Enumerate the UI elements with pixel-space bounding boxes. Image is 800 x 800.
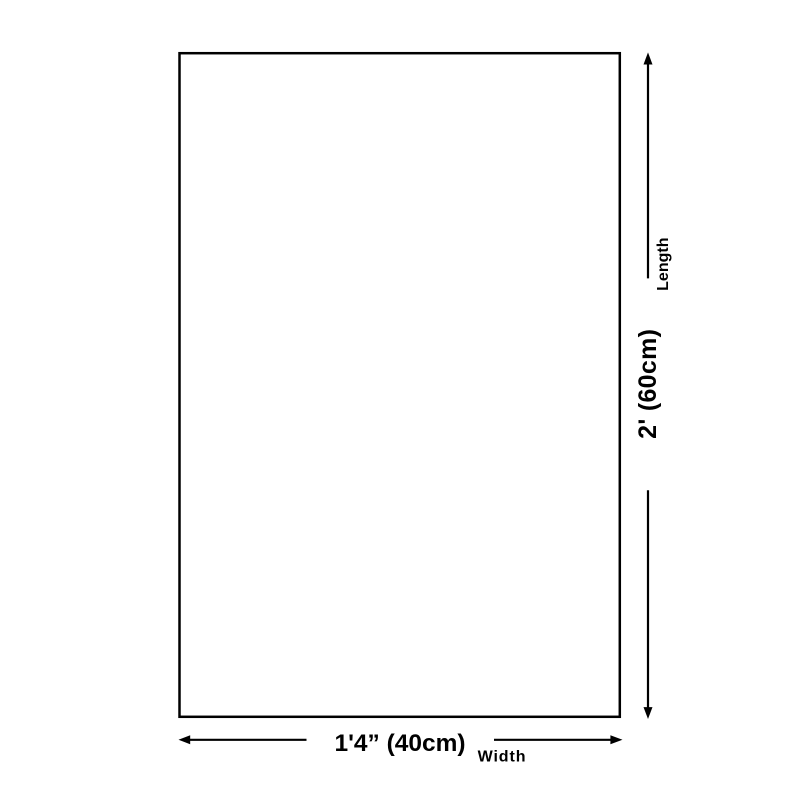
svg-text:2' (60cm): 2' (60cm) <box>634 329 662 439</box>
svg-text:Width: Width <box>478 749 527 766</box>
svg-text:1'4” (40cm): 1'4” (40cm) <box>334 730 465 757</box>
svg-text:Length: Length <box>655 238 672 291</box>
